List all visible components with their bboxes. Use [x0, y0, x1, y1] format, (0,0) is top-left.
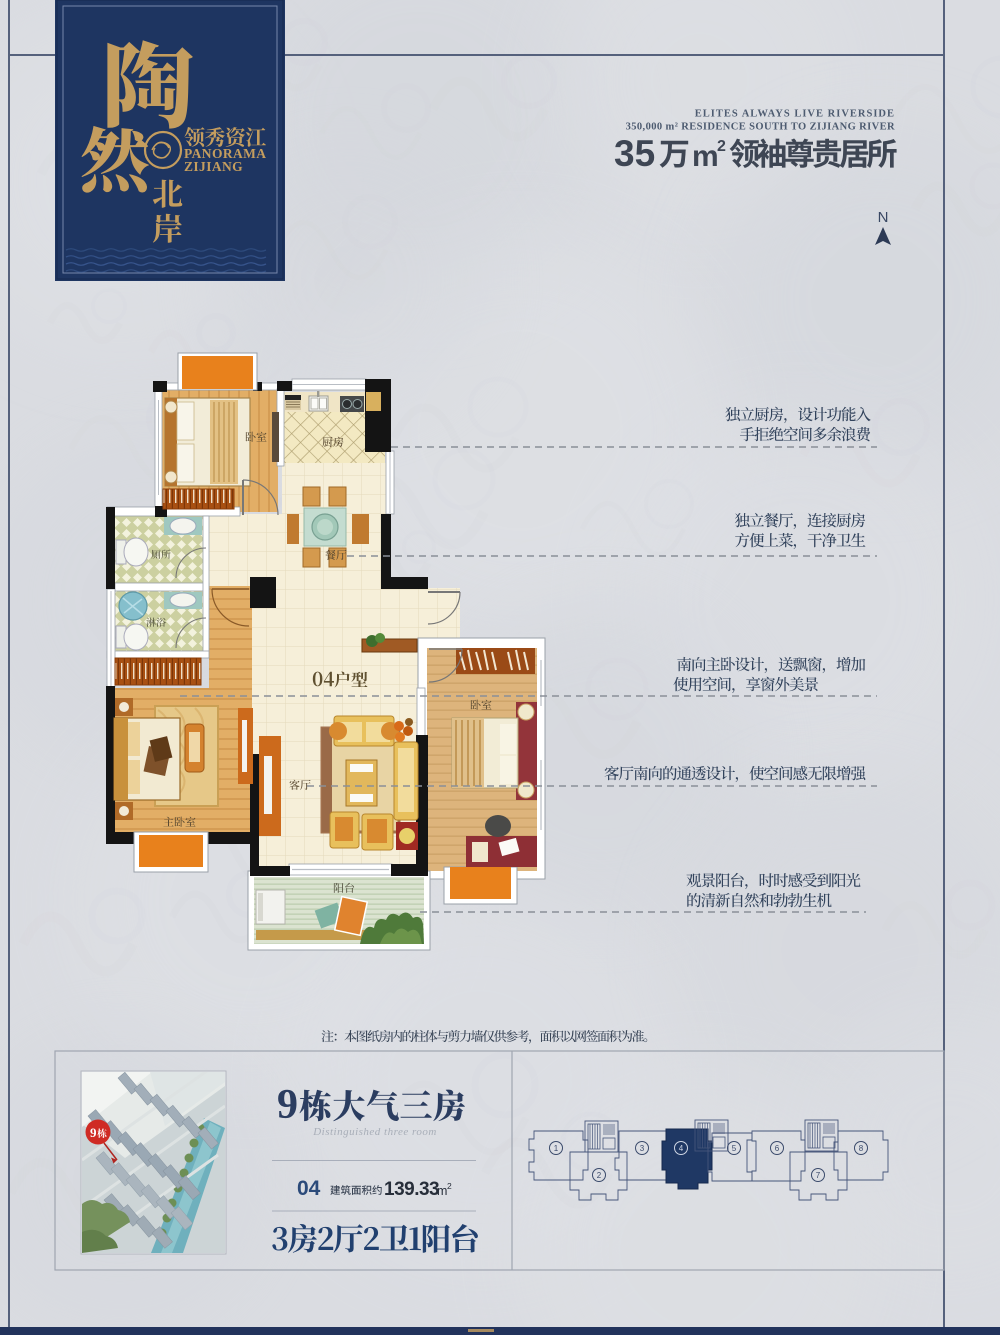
svg-text:9: 9 [277, 1082, 298, 1128]
svg-text:1: 1 [554, 1144, 559, 1153]
svg-text:8: 8 [859, 1144, 864, 1153]
svg-text:2: 2 [717, 138, 726, 155]
svg-text:7: 7 [816, 1171, 821, 1180]
svg-text:139.33: 139.33 [384, 1179, 439, 1200]
svg-text:4: 4 [679, 1144, 684, 1153]
svg-text:350,000 m² RESIDENCE SOUTH TO: 350,000 m² RESIDENCE SOUTH TO ZIJIANG RI… [626, 122, 895, 133]
svg-text:2: 2 [447, 1181, 452, 1191]
svg-text:m: m [692, 140, 719, 173]
svg-text:5: 5 [732, 1144, 737, 1153]
svg-text:04: 04 [297, 1177, 321, 1200]
svg-text:3: 3 [640, 1144, 645, 1153]
svg-text:N: N [878, 209, 889, 226]
svg-text:ELITES ALWAYS LIVE RIVERSIDE: ELITES ALWAYS LIVE RIVERSIDE [695, 109, 895, 120]
svg-text:Distinguished three room: Distinguished three room [312, 1126, 437, 1138]
svg-text:9: 9 [90, 1125, 97, 1140]
svg-text:2: 2 [597, 1171, 602, 1180]
svg-text:ZIJIANG: ZIJIANG [184, 159, 243, 174]
svg-text:m: m [437, 1184, 447, 1198]
svg-text:6: 6 [775, 1144, 780, 1153]
svg-text:35: 35 [614, 133, 655, 174]
